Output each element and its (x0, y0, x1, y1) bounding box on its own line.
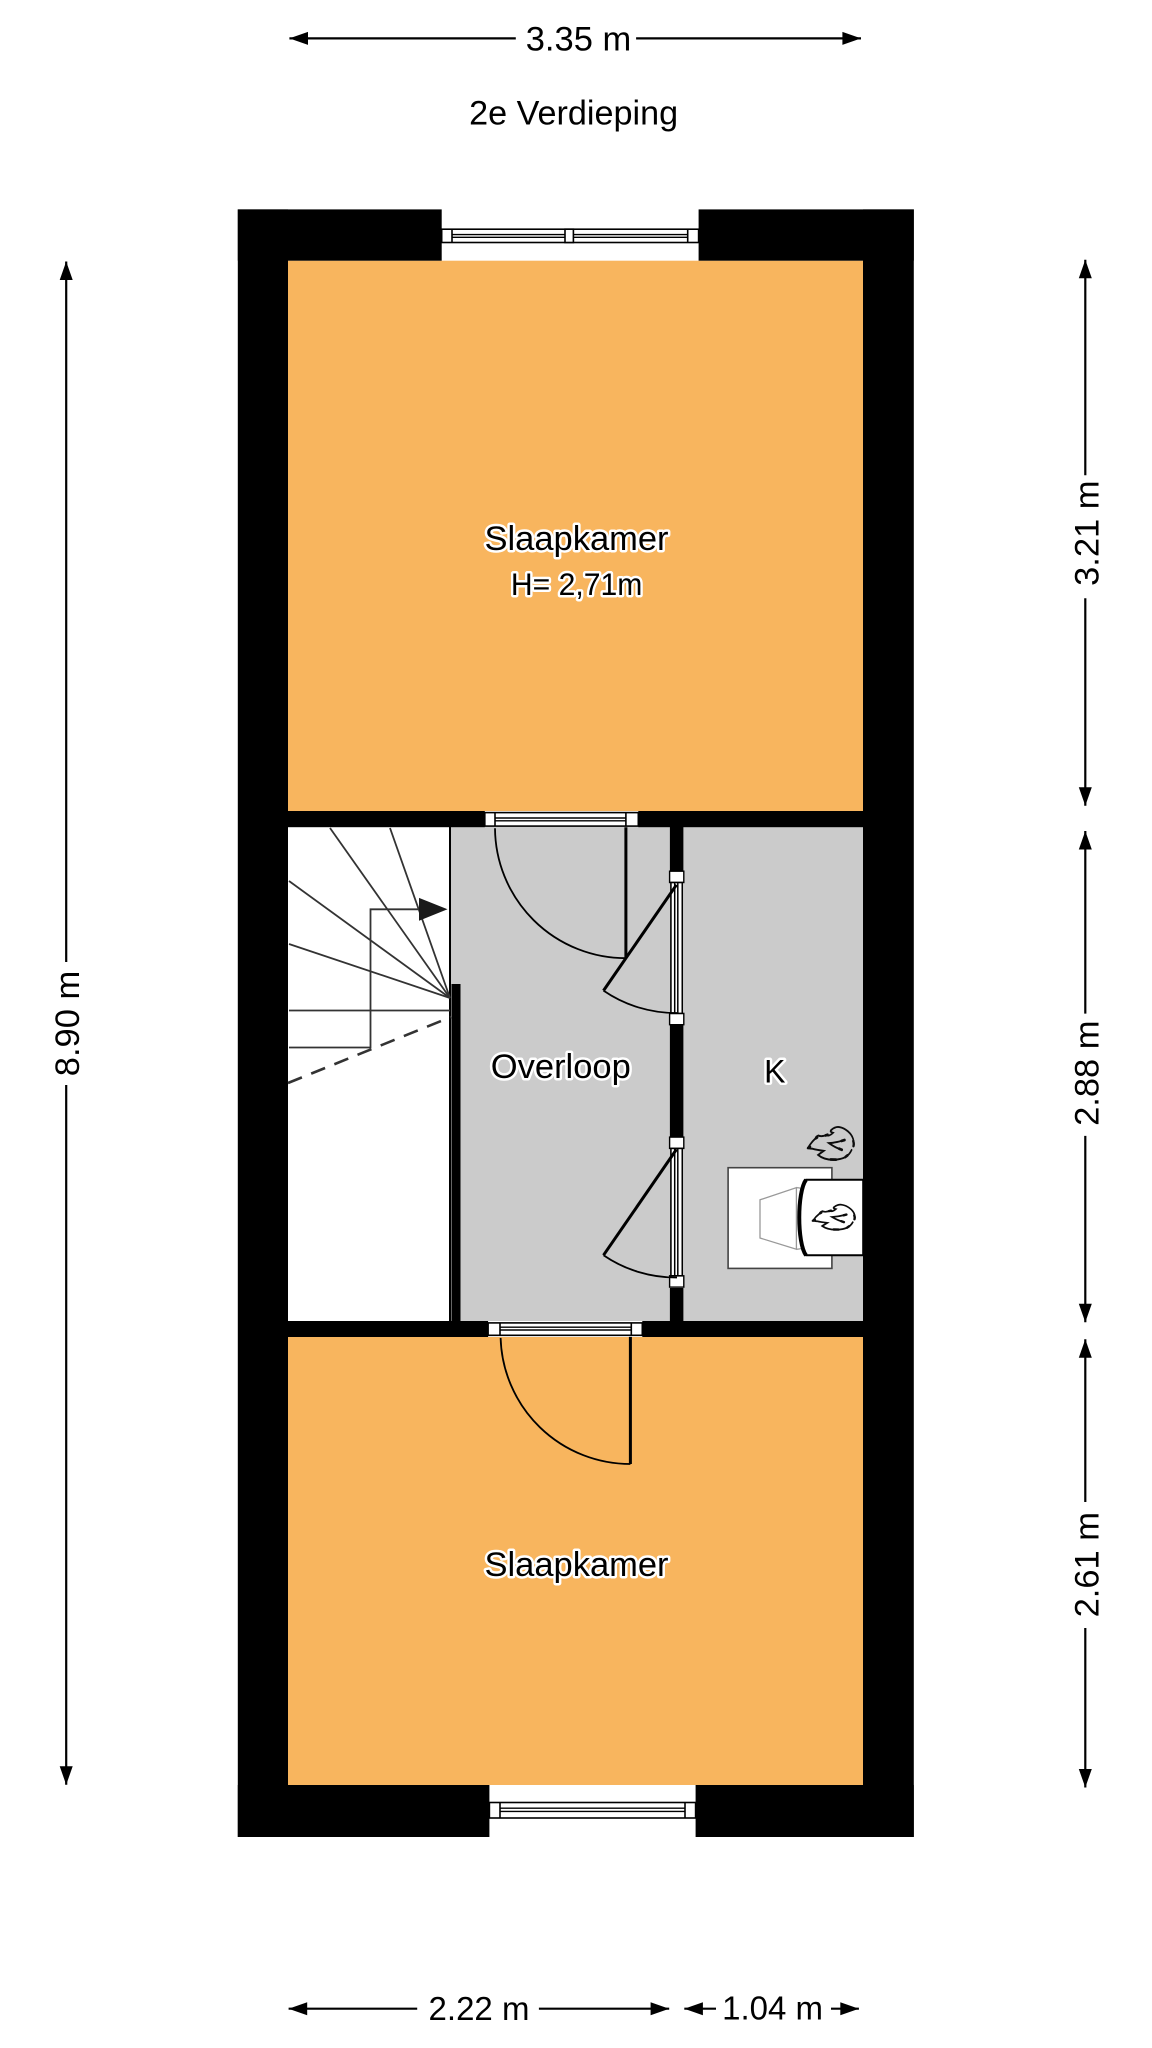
svg-text:2.22 m: 2.22 m (429, 1990, 530, 2027)
svg-text:2e Verdieping: 2e Verdieping (469, 95, 678, 133)
svg-text:8.90 m: 8.90 m (49, 971, 87, 1076)
svg-text:1.04 m: 1.04 m (722, 1990, 823, 2027)
svg-text:Slaapkamer: Slaapkamer (484, 1546, 668, 1584)
svg-text:2.61 m: 2.61 m (1069, 1512, 1107, 1617)
svg-text:K: K (764, 1054, 785, 1090)
svg-text:3.21 m: 3.21 m (1069, 480, 1107, 585)
svg-text:3.35 m: 3.35 m (526, 21, 631, 59)
svg-text:Overloop: Overloop (491, 1048, 631, 1086)
svg-text:2.88 m: 2.88 m (1069, 1020, 1107, 1125)
svg-text:H= 2,71m: H= 2,71m (511, 566, 643, 602)
svg-text:Slaapkamer: Slaapkamer (484, 520, 668, 558)
